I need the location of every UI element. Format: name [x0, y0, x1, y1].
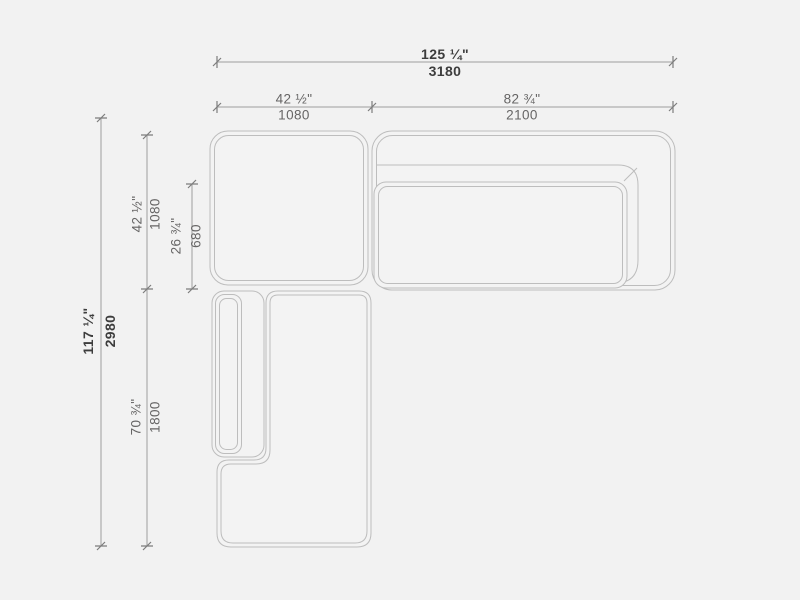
sofa-plan-drawing [0, 0, 800, 600]
dim-right-width-inches: 82 ¾" [504, 92, 541, 106]
sofa-seat-cushion [374, 182, 627, 288]
right-sofa-module-outline [372, 131, 675, 290]
dim-corner-depth-inches: 42 ½" [130, 196, 144, 233]
dim-chaise-length-mm: 1800 [148, 401, 162, 433]
dim-corner-width-inches: 42 ½" [276, 92, 313, 106]
corner-module-outline [210, 131, 368, 285]
dim-overall-width-inches: 125 ¼" [421, 47, 469, 61]
dim-chaise-length-inches: 70 ¾" [129, 399, 143, 436]
dim-seat-depth-mm: 680 [189, 224, 203, 248]
dim-right-width-mm: 2100 [506, 108, 538, 122]
dim-overall-depth-inches: 117 ¼" [81, 307, 95, 354]
dim-corner-width-mm: 1080 [278, 108, 310, 122]
dim-corner-depth-mm: 1080 [148, 198, 162, 230]
chaise-module-outline [212, 291, 371, 547]
technical-drawing-canvas: 125 ¼" 3180 42 ½" 1080 82 ¾" 2100 117 ¼"… [0, 0, 800, 600]
dim-overall-width-mm: 3180 [429, 64, 462, 78]
dimension-lines [95, 56, 677, 550]
dim-seat-depth-inches: 26 ¾" [169, 218, 183, 255]
dim-overall-depth-mm: 2980 [103, 315, 117, 348]
